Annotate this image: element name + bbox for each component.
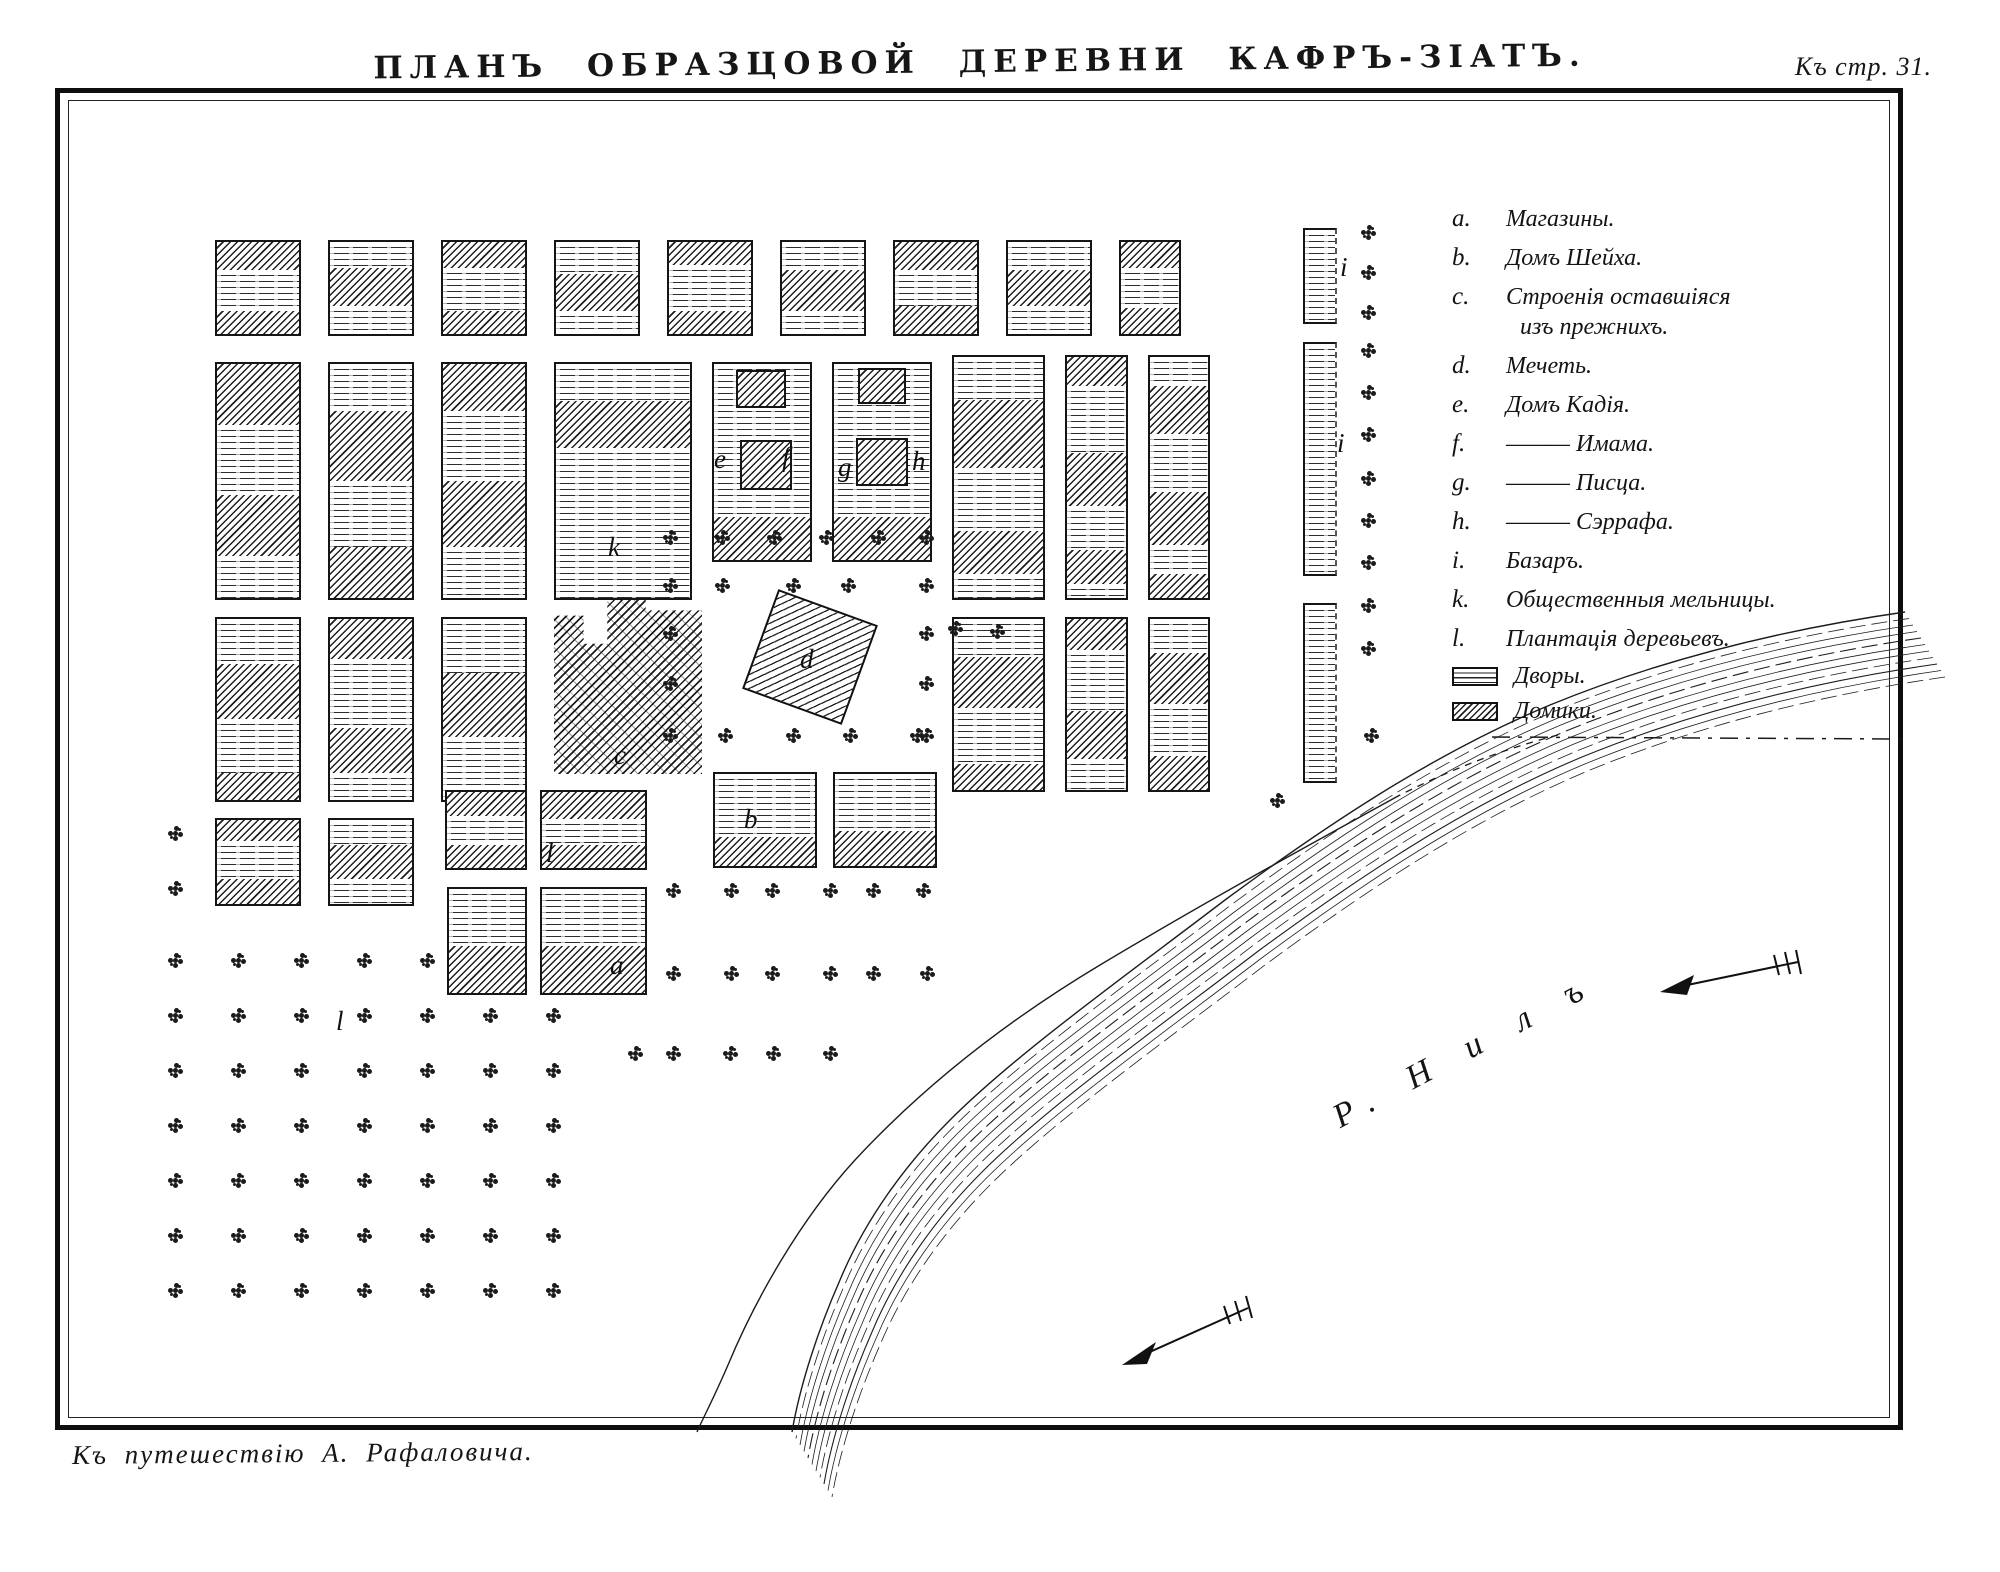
village-block [780,240,866,336]
legend-item-line: Базаръ. [1506,546,1584,576]
village-block [540,887,647,995]
tree-icon [299,1288,304,1293]
village-block [445,790,527,870]
yard-band [217,719,299,773]
houses-band [715,837,815,866]
tree-icon [924,631,929,636]
legend-swatch-label: Домики. [1514,698,1597,725]
tree-icon [362,1233,367,1238]
yard-band [1067,506,1126,549]
village-block [215,362,301,600]
source-caption: Къ путешествію А. Рафаловича. [72,1436,534,1471]
tree-icon [236,1068,241,1073]
tree-icon [362,1178,367,1183]
tree-icon [173,1123,178,1128]
houses-band [330,411,412,481]
yard-band [782,242,864,270]
tree-icon [1366,603,1371,608]
tree-icon [828,1051,833,1056]
houses-band [542,792,645,819]
legend-item-text: Домъ Шейха. [1506,243,1642,273]
tree-icon [848,733,853,738]
yard-band [449,889,525,946]
yard-band [330,364,412,411]
yard-band [1150,357,1208,386]
bazaar-strip [1303,228,1337,324]
yard-band [217,270,299,311]
legend-item-text: Мечеть. [1506,351,1592,381]
tree-icon [1369,733,1374,738]
yard-band [1067,584,1126,598]
tree-icon [173,958,178,963]
houses-band [443,364,525,411]
tree-icon [668,535,673,540]
village-block [447,887,527,995]
legend-item-letter: c. [1452,282,1506,312]
houses-band [1008,270,1090,307]
village-block [215,240,301,336]
river-current-arrow-lower [1122,1296,1252,1365]
tree-icon [915,733,920,738]
tree-icon [729,888,734,893]
tree-icon [425,1013,430,1018]
houses-band [954,764,1043,790]
tree-icon [236,1013,241,1018]
map-letter-d: d [800,644,814,675]
map-letter-g: g [838,452,852,483]
tree-icon [771,1051,776,1056]
houses-band [782,270,864,311]
houses-band [217,820,299,841]
tree-icon [871,888,876,893]
tree-icon [668,681,673,686]
tree-icon [173,1178,178,1183]
village-block [713,772,817,868]
yard-band [443,619,525,673]
legend-item: a.Магазины. [1452,204,1892,234]
yard-band [217,841,299,879]
village-block [856,438,908,486]
houses-band [217,364,299,425]
legend-item: l.Плантація деревьевъ. [1452,624,1892,654]
map-letter-b: b [744,804,758,835]
legend-swatch-row: Домики. [1452,698,1892,725]
houses-band [1067,357,1126,386]
houses-band [217,495,299,556]
houses-band [542,845,645,868]
tree-icon [876,535,881,540]
legend-item-line: Плантація деревьевъ. [1506,624,1730,654]
tree-icon [953,626,958,631]
yard-band [1305,605,1335,781]
yard-band [954,619,1043,657]
legend-item: e.Домъ Кадія. [1452,390,1892,420]
tree-icon [770,971,775,976]
houses-band [954,400,1043,467]
houses-band [443,481,525,547]
yard-band [330,773,412,800]
yard-band [556,448,690,598]
legend-item-line: Общественныя мельницы. [1506,585,1776,615]
legend-item-letter: a. [1452,204,1506,234]
tree-icon [362,958,367,963]
legend-item: g.——— Писца. [1452,468,1892,498]
map-letter-l: l [546,838,554,869]
tree-icon [668,631,673,636]
house-pattern-swatch [1452,702,1498,721]
bazaar-strip [1303,342,1337,576]
houses-band [1121,308,1179,334]
tree-icon [299,1178,304,1183]
yard-band [330,306,412,334]
yard-band [954,357,1043,400]
tree-icon [488,1233,493,1238]
map-letter-i: i [1337,428,1345,459]
legend-item-line: ——— Имама. [1506,429,1654,459]
legend-item-letter: i. [1452,546,1506,576]
yard-band [443,268,525,311]
legend-item-line: ——— Сэррафа. [1506,507,1674,537]
tree-icon [1275,798,1280,803]
tree-icon [173,886,178,891]
houses-band [1150,756,1208,790]
tree-icon [299,1013,304,1018]
yard-band [895,270,977,307]
village-block [833,772,937,868]
legend-item-text: ——— Сэррафа. [1506,507,1674,537]
houses-band [217,773,299,800]
tree-icon [425,1288,430,1293]
tree-icon [173,831,178,836]
village-block [952,355,1045,600]
tree-icon [770,888,775,893]
houses-band [447,845,525,868]
yard-band [1067,650,1126,712]
tree-icon [425,1178,430,1183]
tree-icon [924,583,929,588]
houses-band [443,242,525,268]
legend-item-line: ——— Писца. [1506,468,1646,498]
tree-icon [824,535,829,540]
legend-item-text: Общественныя мельницы. [1506,585,1776,615]
houses-band [330,728,412,773]
tree-icon [236,1178,241,1183]
tree-icon [871,971,876,976]
tree-icon [551,1233,556,1238]
tree-icon [1366,348,1371,353]
legend-item-line: Строенія оставшіяся [1506,282,1731,312]
tree-icon [921,888,926,893]
yard-band [330,242,412,268]
houses-band [330,619,412,659]
yard-band [1150,704,1208,755]
yard-band [330,879,412,904]
tree-icon [1366,518,1371,523]
houses-band [443,673,525,736]
houses-band [669,311,751,334]
legend-swatch-row: Дворы. [1452,663,1892,690]
village-block [858,368,906,404]
village-block [441,240,527,336]
tree-icon [299,958,304,963]
houses-band [1150,386,1208,434]
tree-icon [362,1123,367,1128]
tree-icon [299,1233,304,1238]
houses-band [895,306,977,334]
yard-band [1121,268,1179,308]
legend-item-text: Магазины. [1506,204,1615,234]
yard-band [556,364,690,401]
tree-icon [362,1068,367,1073]
village-block [667,240,753,336]
village-road-dashed [1400,735,1558,795]
tree-icon [633,1051,638,1056]
village-block [328,617,414,802]
tree-icon [828,971,833,976]
village-block [554,362,692,600]
yard-band [1150,545,1208,574]
tree-icon [425,1068,430,1073]
houses-band [449,946,525,993]
tree-icon [828,888,833,893]
village-road [697,795,1400,1432]
village-block [441,617,527,802]
map-letter-k: k [608,532,620,563]
yard-band [1067,386,1126,453]
legend-item-text: ——— Имама. [1506,429,1654,459]
yard-band [542,819,645,846]
houses-band [954,531,1043,574]
yard-band [1150,434,1208,492]
village-block [1006,240,1092,336]
village-block [1148,355,1210,600]
tree-icon [924,733,929,738]
tree-icon [425,958,430,963]
legend-item: c.Строенія оставшіясяизъ прежнихъ. [1452,282,1892,342]
houses-band [330,268,412,307]
yard-band [556,311,638,334]
houses-band [443,311,525,334]
tree-icon [720,535,725,540]
tree-icon [1366,646,1371,651]
yard-band [1305,344,1335,574]
houses-band [835,831,935,866]
houses-band [860,370,904,402]
tree-icon [729,971,734,976]
legend-item-letter: h. [1452,507,1506,537]
yard-band [835,774,935,831]
tree-icon [791,583,796,588]
houses-band [1067,550,1126,584]
village-block [328,240,414,336]
tree-icon [924,681,929,686]
yard-pattern-swatch [1452,667,1498,686]
tree-icon [173,1233,178,1238]
map-letter-i: i [1340,252,1348,283]
legend-item-letter: f. [1452,429,1506,459]
tree-icon [551,1068,556,1073]
yard-band [954,468,1043,531]
houses-band [447,792,525,816]
tree-icon [488,1068,493,1073]
yard-band [1305,230,1335,322]
houses-band [330,547,412,598]
houses-band [895,242,977,270]
tree-icon [551,1123,556,1128]
tree-icon [173,1013,178,1018]
houses-band [1150,574,1208,598]
village-block [554,240,640,336]
legend-item-letter: k. [1452,585,1506,615]
yard-band [1067,759,1126,790]
yard-band [1008,242,1090,270]
tree-icon [671,888,676,893]
map-letter-e: e [714,444,726,475]
tree-icon [425,1233,430,1238]
tree-icon [846,583,851,588]
houses-band [954,657,1043,708]
houses-band [542,946,645,993]
tree-icon [236,1123,241,1128]
tree-icon [236,958,241,963]
map-letter-h: h [912,446,926,477]
tree-icon [236,1233,241,1238]
tree-icon [668,583,673,588]
tree-icon [720,583,725,588]
legend-item-letter: l. [1452,624,1506,654]
yard-band [954,708,1043,764]
houses-band [1067,453,1126,506]
tree-icon [1366,230,1371,235]
tree-icon [173,1068,178,1073]
yard-band [782,311,864,334]
village-block [215,818,301,906]
tree-icon [1366,390,1371,395]
yard-band [669,265,751,311]
legend-item-letter: g. [1452,468,1506,498]
village-block [952,617,1045,792]
map-letter-f: f [782,442,790,473]
legend-item: h.——— Сэррафа. [1452,507,1892,537]
legend-item-line: Домъ Кадія. [1506,390,1630,420]
tree-icon [488,1013,493,1018]
legend-item: i.Базаръ. [1452,546,1892,576]
tree-icon [488,1288,493,1293]
yard-band [330,820,412,845]
houses-band [1150,492,1208,545]
tree-icon [671,971,676,976]
legend-swatch-label: Дворы. [1514,663,1586,690]
tree-icon [425,1123,430,1128]
legend-item-line: Мечеть. [1506,351,1592,381]
tree-icon [488,1178,493,1183]
map-letter-c: c [614,740,626,771]
yard-band [217,556,299,598]
yard-band [542,889,645,946]
tree-icon [551,1013,556,1018]
yard-band [330,481,412,547]
houses-band [217,311,299,334]
yard-band [443,547,525,598]
houses-band [556,401,690,448]
tree-icon [488,1123,493,1128]
houses-band [738,372,784,406]
tree-icon [728,1051,733,1056]
tree-icon [1366,432,1371,437]
tree-icon [791,733,796,738]
old-buildings-c [554,598,702,774]
village-block [441,362,527,600]
village-block [1119,240,1181,336]
legend-item-line: Магазины. [1506,204,1615,234]
village-block [215,617,301,802]
yard-band [330,659,412,728]
houses-band [217,242,299,270]
yard-band [556,242,638,274]
legend-item-text: Плантація деревьевъ. [1506,624,1730,654]
tree-icon [173,1288,178,1293]
tree-icon [362,1288,367,1293]
village-block [328,818,414,906]
village-block [328,362,414,600]
tree-icon [671,1051,676,1056]
yard-band [217,619,299,664]
legend-item: f.——— Имама. [1452,429,1892,459]
tree-icon [1366,310,1371,315]
tree-icon [551,1288,556,1293]
houses-band [556,274,638,311]
legend-item-text: Домъ Кадія. [1506,390,1630,420]
legend-item-text: ——— Писца. [1506,468,1646,498]
map-sheet: ПЛАНЪ ОБРАЗЦОВОЙ ДЕРЕВНИ КАФРЪ-ЗІАТЪ. Къ… [0,0,2000,1572]
legend-item-text: Базаръ. [1506,546,1584,576]
houses-band [1067,711,1126,759]
houses-band [1067,619,1126,650]
legend-item-letter: e. [1452,390,1506,420]
houses-band [217,879,299,904]
tree-icon [362,1013,367,1018]
village-block [1148,617,1210,792]
houses-band [714,517,810,560]
legend-item-letter: d. [1452,351,1506,381]
legend-item-letter: b. [1452,243,1506,273]
legend-item: b.Домъ Шейха. [1452,243,1892,273]
tree-icon [723,733,728,738]
legend-item-text: Строенія оставшіясяизъ прежнихъ. [1506,282,1731,342]
tree-icon [236,1288,241,1293]
yard-band [217,425,299,495]
tree-icon [299,1123,304,1128]
yard-band [443,411,525,481]
yard-band [1150,619,1208,653]
legend-boundary-dashed-line [1492,737,1900,739]
village-block [1065,617,1128,792]
houses-band [217,664,299,718]
village-block [1065,355,1128,600]
yard-band [447,816,525,845]
yard-band [954,574,1043,598]
houses-band [330,845,412,879]
tree-icon [668,733,673,738]
tree-icon [925,971,930,976]
tree-icon [299,1068,304,1073]
tree-icon [772,535,777,540]
river-current-arrow-upper [1660,950,1801,995]
houses-band [834,517,930,560]
village-block [893,240,979,336]
tree-icon [551,1178,556,1183]
houses-band [1150,653,1208,704]
